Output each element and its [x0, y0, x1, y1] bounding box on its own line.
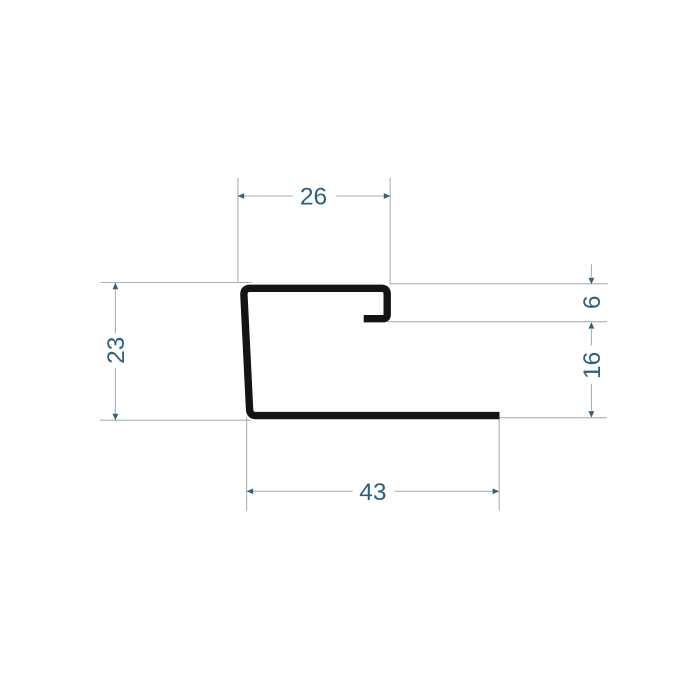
svg-text:16: 16 [579, 352, 606, 379]
svg-text:23: 23 [103, 337, 130, 364]
svg-text:26: 26 [300, 184, 327, 211]
svg-text:6: 6 [579, 295, 606, 309]
svg-text:43: 43 [359, 479, 386, 506]
